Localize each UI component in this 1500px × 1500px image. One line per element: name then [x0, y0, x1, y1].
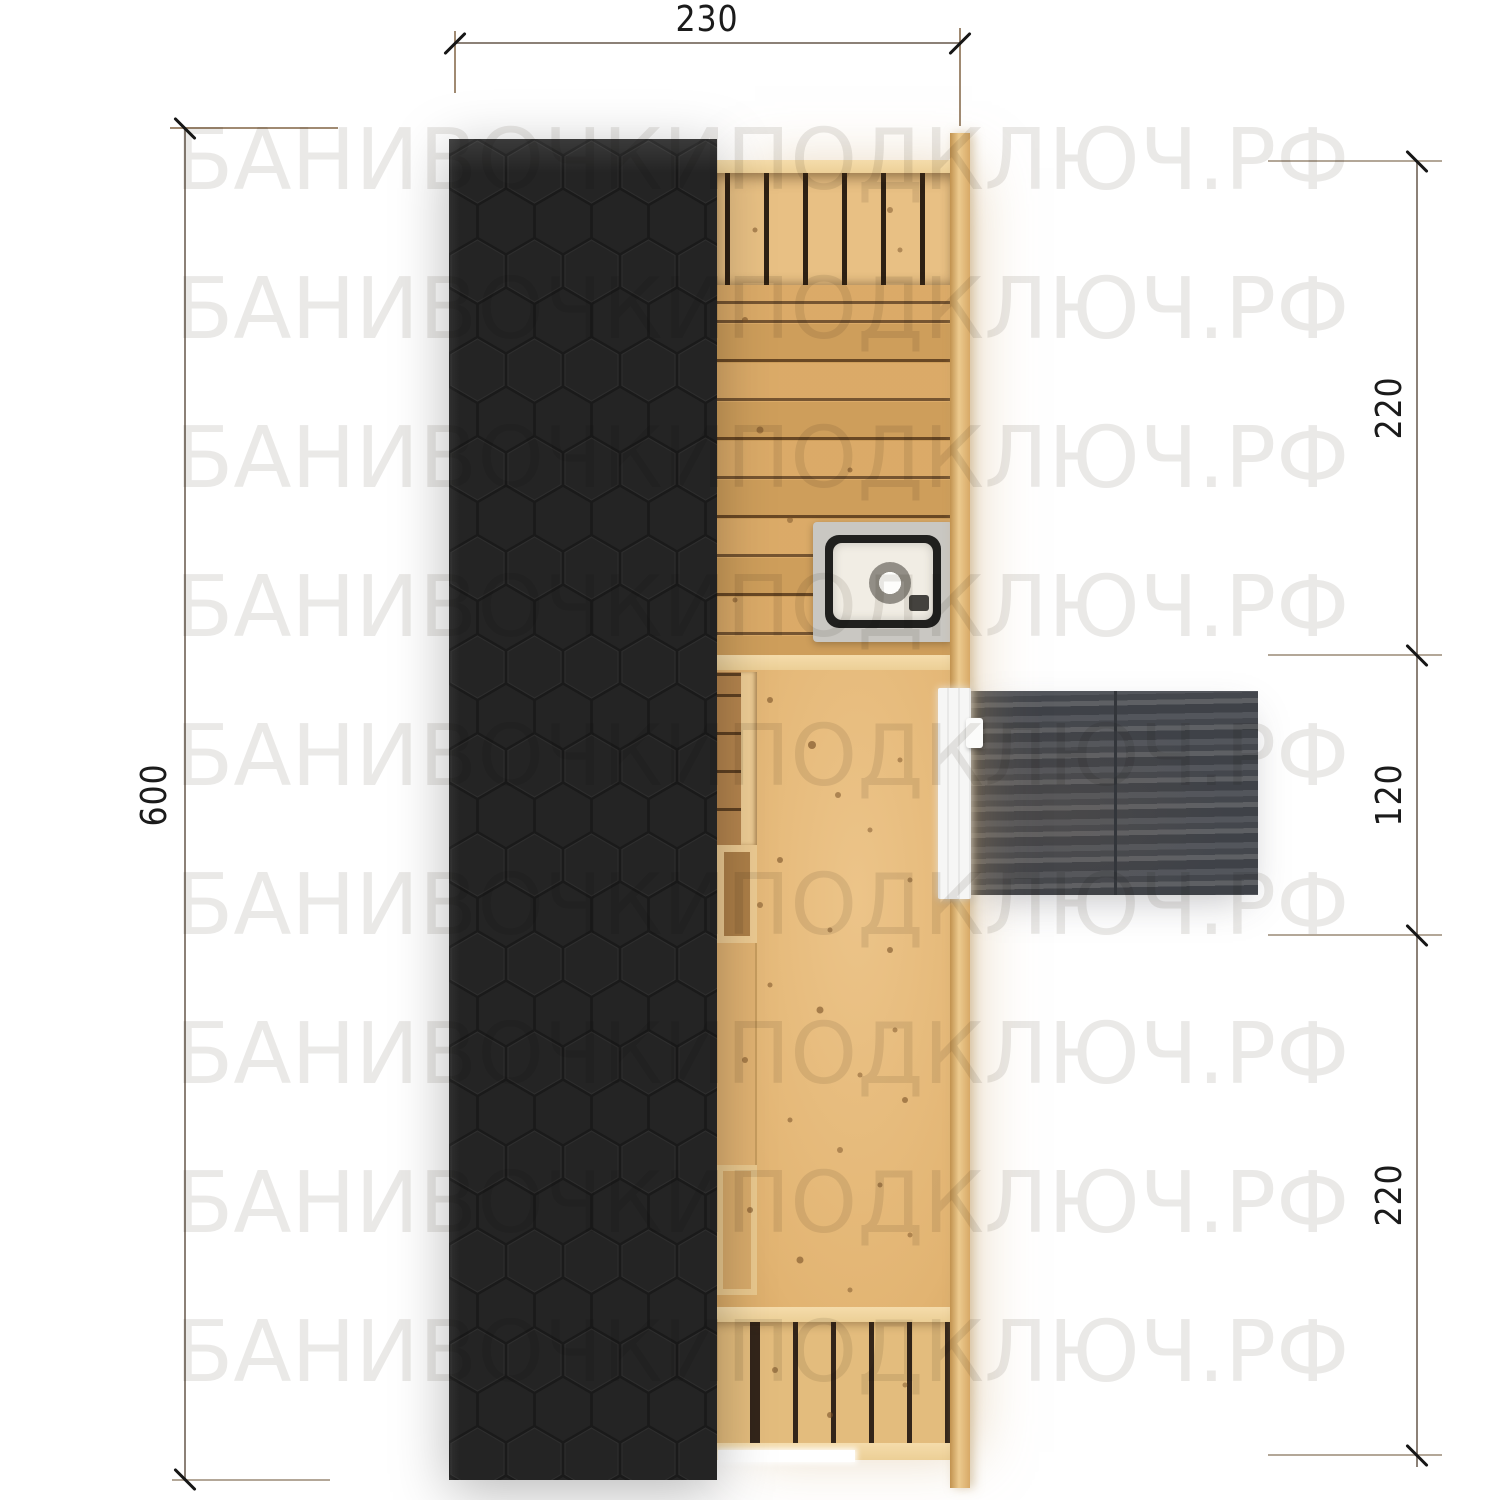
dimension-label-height: 600: [135, 755, 175, 834]
dimension-label-steam-room: 220: [1370, 368, 1410, 447]
sauna-floorplan-canvas: 230 600 220 120 220: [0, 0, 1500, 1500]
dimension-label-width: 230: [659, 0, 756, 40]
dimension-label-entry: 120: [1370, 755, 1410, 834]
dimension-label-rest-room: 220: [1370, 1155, 1410, 1234]
wood-knots: [717, 160, 950, 1460]
dimension-line: [455, 42, 960, 44]
door-handle: [966, 718, 983, 748]
dimension-line: [1416, 161, 1418, 1467]
dimension-line: [184, 128, 186, 1480]
extension-line: [172, 1479, 330, 1481]
building-floor: [717, 160, 950, 1460]
terrace-board-seam: [1114, 691, 1117, 895]
terrace-deck: [970, 691, 1258, 895]
extension-line: [170, 127, 338, 129]
roof-highlight: [449, 139, 717, 1480]
roof-shingles: [449, 139, 717, 1480]
